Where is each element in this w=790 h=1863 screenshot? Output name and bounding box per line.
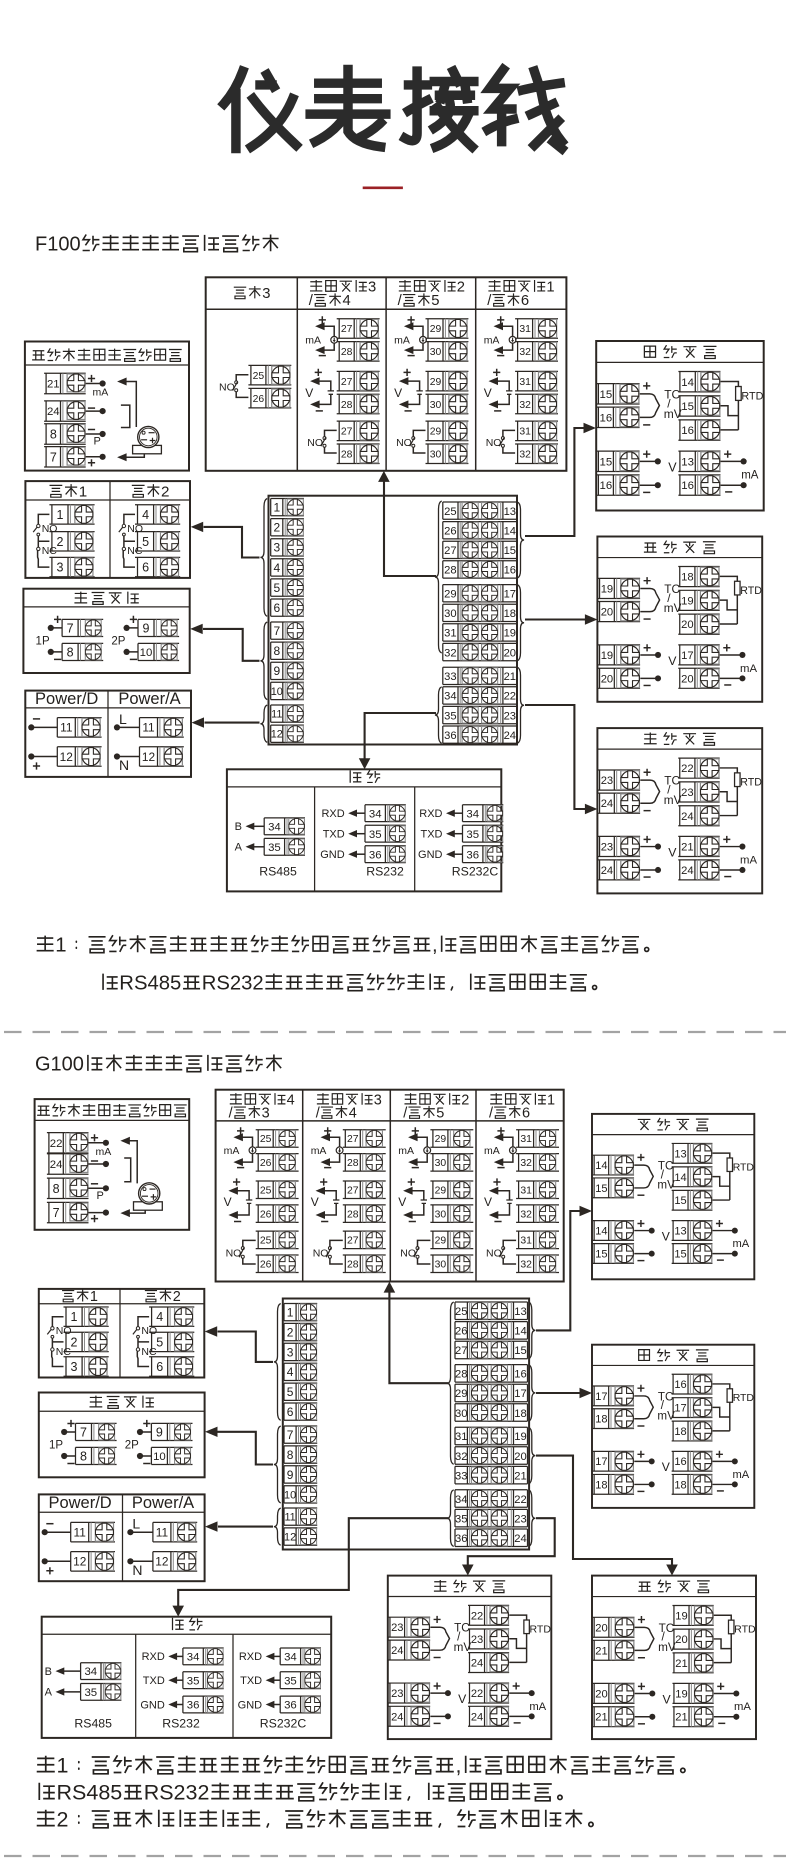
svg-text:22: 22 bbox=[50, 1138, 63, 1150]
svg-text:12: 12 bbox=[73, 1555, 87, 1569]
svg-text:,: , bbox=[432, 935, 438, 957]
svg-text:7: 7 bbox=[53, 1206, 60, 1220]
svg-text:RTD: RTD bbox=[740, 585, 762, 597]
svg-text:31: 31 bbox=[520, 1186, 532, 1197]
svg-text:11: 11 bbox=[271, 709, 282, 721]
svg-text:2P: 2P bbox=[111, 635, 125, 647]
svg-text:34: 34 bbox=[444, 691, 456, 703]
svg-text:27: 27 bbox=[341, 427, 353, 438]
svg-text:32: 32 bbox=[520, 1260, 532, 1271]
svg-text:15: 15 bbox=[681, 401, 694, 413]
svg-text:21: 21 bbox=[595, 1712, 607, 1724]
svg-text:30: 30 bbox=[455, 1408, 467, 1420]
svg-text:23: 23 bbox=[601, 841, 613, 853]
svg-text:RTD: RTD bbox=[733, 1162, 755, 1173]
svg-text:4: 4 bbox=[156, 1310, 163, 1324]
svg-text:18: 18 bbox=[681, 572, 693, 584]
svg-text:31: 31 bbox=[519, 427, 531, 438]
svg-text:19: 19 bbox=[514, 1431, 526, 1443]
svg-text:21: 21 bbox=[675, 1658, 687, 1670]
svg-text:24: 24 bbox=[391, 1711, 403, 1723]
svg-text:26: 26 bbox=[455, 1326, 467, 1338]
svg-text:14: 14 bbox=[674, 1172, 686, 1184]
svg-text:1: 1 bbox=[546, 280, 554, 296]
svg-text:mA: mA bbox=[733, 1469, 750, 1481]
svg-text:20: 20 bbox=[601, 607, 613, 619]
svg-text:mA: mA bbox=[484, 1145, 500, 1157]
svg-text:Power/D: Power/D bbox=[35, 690, 98, 708]
svg-text:V: V bbox=[662, 1229, 671, 1243]
svg-text:15: 15 bbox=[595, 1249, 607, 1261]
svg-text:V: V bbox=[484, 1195, 492, 1209]
svg-text:24: 24 bbox=[681, 811, 693, 823]
svg-text:NO: NO bbox=[486, 437, 502, 449]
svg-text:V: V bbox=[224, 1195, 232, 1209]
svg-text:25: 25 bbox=[260, 1134, 272, 1145]
svg-text:28: 28 bbox=[347, 1260, 359, 1271]
svg-text:/: / bbox=[398, 293, 403, 309]
svg-text:30: 30 bbox=[435, 1209, 447, 1220]
svg-text:31: 31 bbox=[444, 628, 456, 640]
svg-text:GND: GND bbox=[238, 1699, 263, 1711]
svg-text:8: 8 bbox=[273, 644, 280, 658]
svg-text:22: 22 bbox=[681, 763, 693, 775]
svg-text:5: 5 bbox=[436, 1106, 444, 1122]
svg-text:mA: mA bbox=[394, 334, 410, 346]
svg-text:35: 35 bbox=[187, 1675, 200, 1687]
svg-text:RS232C: RS232C bbox=[260, 1717, 307, 1731]
svg-text:1P: 1P bbox=[36, 635, 50, 647]
svg-text:28: 28 bbox=[341, 347, 353, 358]
svg-text:18: 18 bbox=[595, 1414, 607, 1426]
svg-text:NO: NO bbox=[313, 1247, 329, 1259]
svg-text:12: 12 bbox=[155, 1555, 169, 1569]
svg-text:,: , bbox=[456, 1754, 462, 1778]
svg-text:24: 24 bbox=[50, 1159, 63, 1171]
svg-text:29: 29 bbox=[430, 377, 442, 388]
svg-text:2: 2 bbox=[273, 521, 280, 535]
svg-text:6: 6 bbox=[522, 1106, 530, 1122]
svg-text:NC: NC bbox=[127, 545, 143, 557]
svg-text:17: 17 bbox=[681, 650, 693, 662]
svg-text:35: 35 bbox=[369, 829, 382, 841]
svg-text:16: 16 bbox=[600, 480, 613, 492]
svg-text:mA: mA bbox=[484, 334, 500, 346]
svg-text:25: 25 bbox=[253, 371, 265, 382]
svg-text:34: 34 bbox=[466, 808, 479, 820]
svg-text:NO: NO bbox=[226, 1247, 242, 1259]
svg-text:2: 2 bbox=[161, 483, 169, 500]
svg-text:17: 17 bbox=[674, 1403, 686, 1415]
svg-text:4: 4 bbox=[287, 1365, 294, 1379]
svg-text:RTD: RTD bbox=[741, 390, 763, 402]
svg-text:29: 29 bbox=[444, 589, 456, 601]
svg-text:23: 23 bbox=[601, 775, 613, 787]
svg-text:18: 18 bbox=[514, 1408, 526, 1420]
svg-text:13: 13 bbox=[674, 1225, 686, 1237]
svg-text:35: 35 bbox=[455, 1513, 467, 1525]
svg-text:27: 27 bbox=[455, 1345, 467, 1357]
svg-text:30: 30 bbox=[435, 1158, 447, 1169]
svg-text:mA: mA bbox=[398, 1145, 414, 1157]
svg-text:L: L bbox=[132, 1516, 140, 1532]
svg-text:29: 29 bbox=[430, 427, 442, 438]
svg-text:V: V bbox=[662, 1460, 671, 1474]
svg-text:13: 13 bbox=[681, 456, 694, 468]
svg-text:5: 5 bbox=[142, 535, 149, 549]
svg-text:16: 16 bbox=[600, 412, 613, 424]
svg-text:10: 10 bbox=[284, 1489, 296, 1501]
svg-text:8: 8 bbox=[67, 645, 74, 659]
svg-text:28: 28 bbox=[341, 400, 353, 411]
svg-text:NO: NO bbox=[127, 523, 143, 535]
svg-text:22: 22 bbox=[504, 691, 516, 703]
svg-text:10: 10 bbox=[140, 647, 153, 659]
svg-text:mA: mA bbox=[93, 387, 109, 399]
svg-text:1: 1 bbox=[57, 1754, 69, 1778]
svg-text:3: 3 bbox=[374, 1093, 382, 1109]
svg-text:13: 13 bbox=[504, 506, 516, 518]
svg-text:Power/A: Power/A bbox=[118, 690, 180, 708]
svg-text:14: 14 bbox=[681, 377, 694, 389]
svg-text:/: / bbox=[229, 1106, 234, 1122]
svg-text:20: 20 bbox=[681, 673, 693, 685]
svg-text:26: 26 bbox=[260, 1260, 272, 1271]
svg-text:31: 31 bbox=[519, 377, 531, 388]
svg-text:32: 32 bbox=[519, 450, 531, 461]
svg-text:28: 28 bbox=[455, 1369, 467, 1381]
svg-text:27: 27 bbox=[341, 377, 353, 388]
svg-text:20: 20 bbox=[504, 647, 516, 659]
svg-text:19: 19 bbox=[675, 1610, 687, 1622]
svg-text:1: 1 bbox=[287, 1306, 294, 1320]
svg-text:35: 35 bbox=[444, 710, 456, 722]
svg-text:TXD: TXD bbox=[143, 1675, 165, 1687]
svg-text:mV: mV bbox=[658, 1641, 676, 1654]
svg-text:27: 27 bbox=[347, 1186, 359, 1197]
svg-text:10: 10 bbox=[153, 1451, 166, 1463]
svg-text:31: 31 bbox=[520, 1236, 532, 1247]
svg-text:N: N bbox=[132, 1562, 142, 1578]
svg-text:24: 24 bbox=[504, 730, 516, 742]
svg-text:17: 17 bbox=[504, 589, 516, 601]
svg-text:35: 35 bbox=[268, 842, 281, 854]
svg-text:mA: mA bbox=[733, 1238, 750, 1250]
svg-text:NO: NO bbox=[307, 437, 323, 449]
svg-text:14: 14 bbox=[514, 1326, 526, 1338]
svg-text:9: 9 bbox=[287, 1468, 294, 1482]
svg-text:V: V bbox=[305, 386, 313, 400]
svg-text:mA: mA bbox=[740, 663, 757, 675]
svg-text:20: 20 bbox=[601, 673, 613, 685]
svg-text:6: 6 bbox=[287, 1405, 294, 1419]
svg-text:15: 15 bbox=[600, 456, 613, 468]
svg-text:1P: 1P bbox=[49, 1440, 63, 1452]
svg-text:15: 15 bbox=[514, 1345, 526, 1357]
svg-text:19: 19 bbox=[504, 628, 516, 640]
svg-text:7: 7 bbox=[273, 624, 280, 638]
svg-text:2: 2 bbox=[57, 535, 64, 549]
svg-text:V: V bbox=[394, 386, 402, 400]
svg-text:36: 36 bbox=[284, 1700, 297, 1712]
svg-text:V: V bbox=[668, 654, 677, 668]
svg-text:RTD: RTD bbox=[734, 1624, 756, 1636]
svg-text:RS232: RS232 bbox=[162, 1717, 200, 1731]
svg-text:35: 35 bbox=[84, 1687, 97, 1699]
svg-text:Power/D: Power/D bbox=[48, 1494, 111, 1512]
svg-text:mV: mV bbox=[657, 1409, 675, 1422]
svg-text:25: 25 bbox=[260, 1236, 272, 1247]
svg-text:20: 20 bbox=[681, 619, 693, 631]
svg-text:12: 12 bbox=[271, 729, 283, 741]
svg-text:30: 30 bbox=[435, 1260, 447, 1271]
svg-text:11: 11 bbox=[156, 1525, 169, 1539]
svg-text:36: 36 bbox=[187, 1700, 200, 1712]
svg-text:GND: GND bbox=[320, 849, 345, 861]
svg-text:24: 24 bbox=[601, 865, 613, 877]
svg-text:3: 3 bbox=[262, 1106, 270, 1122]
svg-text:TXD: TXD bbox=[323, 829, 345, 841]
svg-text:RTD: RTD bbox=[740, 776, 762, 788]
svg-text:NO: NO bbox=[42, 523, 58, 535]
svg-text:17: 17 bbox=[595, 1456, 607, 1468]
svg-text:28: 28 bbox=[347, 1209, 359, 1220]
svg-text:8: 8 bbox=[53, 1182, 60, 1196]
svg-text:RS232C: RS232C bbox=[452, 865, 499, 879]
svg-text:A: A bbox=[235, 842, 243, 854]
svg-text:1: 1 bbox=[547, 1093, 555, 1109]
svg-text:24: 24 bbox=[681, 865, 693, 877]
svg-text:25: 25 bbox=[260, 1186, 272, 1197]
svg-text:26: 26 bbox=[253, 394, 265, 405]
svg-text:V: V bbox=[484, 386, 492, 400]
svg-text:mV: mV bbox=[664, 407, 682, 421]
svg-text:25: 25 bbox=[455, 1306, 467, 1318]
svg-text:29: 29 bbox=[435, 1186, 447, 1197]
svg-text:16: 16 bbox=[514, 1369, 526, 1381]
svg-text:21: 21 bbox=[504, 671, 516, 683]
svg-text:23: 23 bbox=[471, 1634, 483, 1646]
svg-text:5: 5 bbox=[273, 581, 280, 595]
svg-text:12: 12 bbox=[60, 750, 74, 764]
svg-text:NC: NC bbox=[42, 545, 58, 557]
svg-text:14: 14 bbox=[595, 1225, 607, 1237]
svg-text:20: 20 bbox=[514, 1451, 526, 1463]
svg-text:27: 27 bbox=[347, 1236, 359, 1247]
svg-text:2: 2 bbox=[57, 1808, 69, 1832]
svg-text:GND: GND bbox=[140, 1699, 165, 1711]
svg-text:11: 11 bbox=[142, 721, 155, 735]
svg-text:mV: mV bbox=[664, 793, 682, 807]
svg-text:/: / bbox=[309, 293, 314, 309]
svg-text:2: 2 bbox=[457, 280, 465, 296]
svg-text:1: 1 bbox=[90, 1289, 98, 1305]
svg-text:F100: F100 bbox=[35, 234, 81, 256]
svg-text:16: 16 bbox=[674, 1379, 686, 1391]
svg-text:32: 32 bbox=[520, 1209, 532, 1220]
svg-text:5: 5 bbox=[156, 1335, 163, 1349]
svg-text:/: / bbox=[403, 1106, 408, 1122]
svg-text:RXD: RXD bbox=[419, 808, 442, 820]
svg-text:30: 30 bbox=[444, 608, 456, 620]
svg-text:16: 16 bbox=[681, 425, 694, 437]
svg-text:5: 5 bbox=[431, 293, 439, 309]
svg-text:29: 29 bbox=[435, 1236, 447, 1247]
svg-text:4: 4 bbox=[349, 1106, 357, 1122]
svg-text:36: 36 bbox=[466, 849, 479, 861]
svg-text:B: B bbox=[235, 821, 242, 833]
svg-text:mA: mA bbox=[529, 1701, 546, 1713]
svg-text:RS232: RS232 bbox=[202, 973, 264, 995]
svg-text:mV: mV bbox=[454, 1641, 472, 1654]
svg-text:3: 3 bbox=[368, 280, 376, 296]
svg-text:35: 35 bbox=[466, 829, 479, 841]
svg-text:P: P bbox=[94, 436, 101, 448]
svg-text:RTD: RTD bbox=[733, 1393, 755, 1404]
svg-text:26: 26 bbox=[260, 1209, 272, 1220]
svg-text:V: V bbox=[311, 1195, 319, 1209]
svg-text:29: 29 bbox=[435, 1134, 447, 1145]
svg-text:Power/A: Power/A bbox=[132, 1494, 194, 1512]
svg-text:TXD: TXD bbox=[421, 829, 443, 841]
svg-text:NC: NC bbox=[141, 1346, 157, 1358]
svg-text:22: 22 bbox=[514, 1494, 526, 1506]
svg-text:28: 28 bbox=[341, 450, 353, 461]
svg-text:V: V bbox=[662, 1692, 671, 1706]
svg-text:16: 16 bbox=[681, 480, 694, 492]
svg-text:24: 24 bbox=[471, 1711, 483, 1723]
svg-text:6: 6 bbox=[273, 601, 280, 615]
svg-text:RTD: RTD bbox=[530, 1624, 552, 1636]
svg-text:mA: mA bbox=[741, 470, 759, 482]
svg-text:RXD: RXD bbox=[142, 1651, 165, 1663]
svg-text:3: 3 bbox=[262, 286, 270, 302]
svg-text:33: 33 bbox=[444, 671, 456, 683]
svg-text:1: 1 bbox=[273, 501, 280, 515]
svg-text:RS485: RS485 bbox=[57, 1781, 123, 1805]
svg-text:7: 7 bbox=[80, 1426, 87, 1440]
svg-text:21: 21 bbox=[595, 1645, 607, 1657]
svg-text:1: 1 bbox=[79, 483, 87, 500]
svg-text:RXD: RXD bbox=[321, 808, 344, 820]
svg-text:2: 2 bbox=[461, 1093, 469, 1109]
svg-text:15: 15 bbox=[600, 389, 613, 401]
svg-text:15: 15 bbox=[674, 1195, 686, 1207]
svg-text:27: 27 bbox=[444, 545, 456, 557]
svg-text:2: 2 bbox=[287, 1325, 294, 1339]
svg-text:24: 24 bbox=[514, 1533, 526, 1545]
svg-text:10: 10 bbox=[271, 686, 283, 698]
svg-text:16: 16 bbox=[504, 565, 516, 577]
svg-text:34: 34 bbox=[284, 1652, 297, 1664]
svg-text:19: 19 bbox=[601, 650, 613, 662]
svg-text:1: 1 bbox=[57, 508, 64, 522]
svg-text:15: 15 bbox=[504, 545, 516, 557]
svg-text:8: 8 bbox=[80, 1450, 87, 1464]
svg-text:26: 26 bbox=[444, 526, 456, 538]
svg-text:14: 14 bbox=[595, 1160, 607, 1172]
svg-text:22: 22 bbox=[471, 1688, 483, 1700]
svg-text:34: 34 bbox=[187, 1652, 200, 1664]
svg-text:18: 18 bbox=[504, 608, 516, 620]
svg-text:30: 30 bbox=[430, 400, 442, 411]
svg-text:mA: mA bbox=[740, 854, 757, 866]
svg-text:25: 25 bbox=[444, 506, 456, 518]
svg-text:9: 9 bbox=[143, 621, 150, 635]
svg-text:16: 16 bbox=[674, 1456, 686, 1468]
svg-text:19: 19 bbox=[601, 583, 613, 595]
svg-text:30: 30 bbox=[430, 347, 442, 358]
svg-text:7: 7 bbox=[50, 450, 57, 464]
svg-text:/: / bbox=[489, 1106, 494, 1122]
svg-text:23: 23 bbox=[681, 787, 693, 799]
svg-text:7: 7 bbox=[287, 1428, 294, 1442]
svg-text:15: 15 bbox=[674, 1249, 686, 1261]
svg-text:B: B bbox=[45, 1666, 52, 1678]
svg-text:26: 26 bbox=[260, 1158, 272, 1169]
svg-text:mV: mV bbox=[664, 601, 682, 615]
svg-text:V: V bbox=[668, 845, 677, 859]
svg-text:13: 13 bbox=[674, 1148, 686, 1160]
svg-text:34: 34 bbox=[84, 1666, 97, 1678]
svg-text:12: 12 bbox=[284, 1532, 296, 1544]
svg-text:G100: G100 bbox=[35, 1054, 84, 1076]
svg-text:mA: mA bbox=[224, 1145, 240, 1157]
svg-text:21: 21 bbox=[681, 841, 693, 853]
svg-text:28: 28 bbox=[444, 565, 456, 577]
svg-text:29: 29 bbox=[455, 1388, 467, 1400]
svg-text:23: 23 bbox=[504, 710, 516, 722]
svg-text:36: 36 bbox=[369, 849, 382, 861]
svg-text:RXD: RXD bbox=[239, 1651, 262, 1663]
svg-text:/: / bbox=[487, 293, 492, 309]
svg-text:8: 8 bbox=[287, 1448, 294, 1462]
svg-text:20: 20 bbox=[595, 1622, 607, 1634]
svg-text:5: 5 bbox=[287, 1385, 294, 1399]
svg-text:L: L bbox=[119, 711, 127, 727]
svg-text:NO: NO bbox=[219, 381, 235, 393]
svg-text:A: A bbox=[45, 1687, 53, 1699]
svg-text:2: 2 bbox=[173, 1289, 181, 1305]
svg-text:RS485: RS485 bbox=[119, 973, 181, 995]
svg-text:RS485: RS485 bbox=[74, 1717, 112, 1731]
svg-text:NO: NO bbox=[396, 437, 412, 449]
svg-text:2P: 2P bbox=[125, 1440, 139, 1452]
svg-text:28: 28 bbox=[347, 1158, 359, 1169]
svg-text:20: 20 bbox=[595, 1688, 607, 1700]
svg-text:6: 6 bbox=[156, 1360, 163, 1374]
svg-text:9: 9 bbox=[273, 664, 280, 678]
svg-text:11: 11 bbox=[74, 1525, 87, 1539]
svg-text:32: 32 bbox=[455, 1451, 467, 1463]
svg-text:18: 18 bbox=[674, 1479, 686, 1491]
svg-text:23: 23 bbox=[514, 1513, 526, 1525]
svg-text:20: 20 bbox=[675, 1634, 687, 1646]
svg-text:11: 11 bbox=[60, 721, 73, 735]
svg-text:23: 23 bbox=[391, 1688, 403, 1700]
svg-text:4: 4 bbox=[343, 293, 351, 309]
svg-text:3: 3 bbox=[273, 541, 280, 555]
svg-text:32: 32 bbox=[520, 1158, 532, 1169]
svg-text:NO: NO bbox=[141, 1325, 157, 1337]
svg-text:RS232: RS232 bbox=[366, 865, 404, 879]
svg-text:33: 33 bbox=[455, 1470, 467, 1482]
svg-text:12: 12 bbox=[142, 750, 156, 764]
svg-text:3: 3 bbox=[57, 561, 64, 575]
svg-text:1: 1 bbox=[71, 1310, 78, 1324]
svg-text:mA: mA bbox=[305, 334, 321, 346]
svg-text:7: 7 bbox=[67, 621, 74, 635]
